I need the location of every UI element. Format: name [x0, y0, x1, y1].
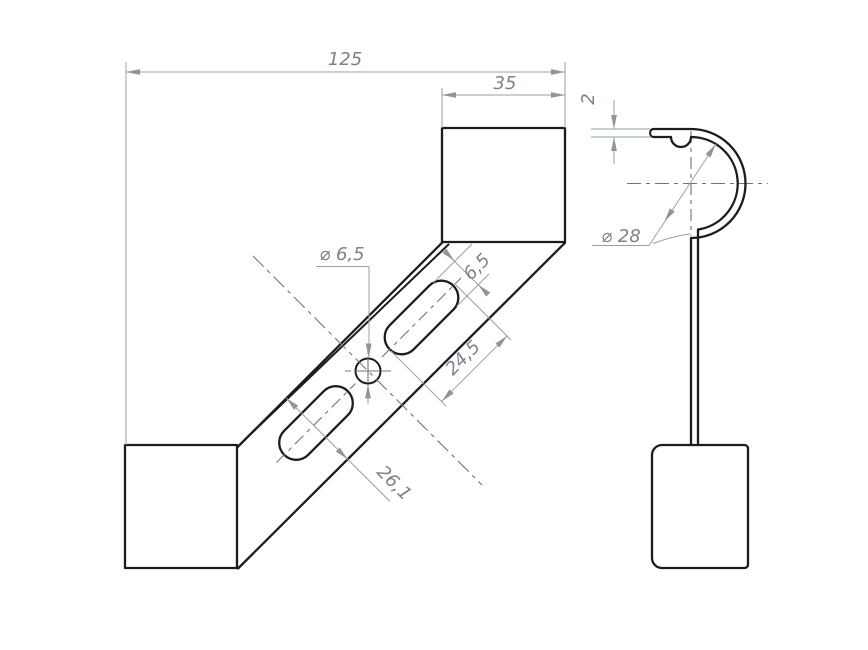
arrowhead [365, 385, 371, 399]
arrowhead [662, 208, 675, 223]
arrowhead [551, 92, 565, 98]
top-plate-outline [442, 128, 565, 242]
dim-clamp-diameter-text: ⌀ 28 [601, 226, 640, 247]
strap-lower-edge [238, 243, 565, 569]
arrowhead [442, 92, 456, 98]
extension-line [454, 283, 511, 340]
hook-outer-profile [653, 129, 746, 445]
front-view: 125 35 ⌀ 6,5 6,5 24,5 26,1 [125, 49, 565, 569]
arrowhead [495, 334, 509, 348]
arrowhead [442, 249, 456, 263]
arrowhead [284, 396, 298, 410]
arrowhead [366, 344, 372, 358]
arrowhead [476, 283, 490, 297]
extension-line [391, 351, 446, 406]
dim-strap-width-text: 26,1 [372, 462, 415, 505]
base-plate-profile [652, 445, 748, 568]
dim-hole-diameter-text: ⌀ 6,5 [319, 244, 364, 265]
dim-slot-length-text: 24,5 [442, 337, 485, 380]
arrowhead [551, 69, 565, 75]
bottom-plate-outline [125, 445, 237, 568]
bracket-drawing: 125 35 ⌀ 6,5 6,5 24,5 26,1 [0, 0, 868, 650]
dim-thickness-text: 2 [578, 93, 599, 104]
flange-end-cap [650, 129, 653, 137]
dim-top-plate-width-text: 35 [494, 73, 517, 94]
strap-upper-edge-bend-line [246, 245, 449, 439]
arrowhead [126, 69, 140, 75]
hook-end-edge-line [653, 234, 691, 244]
technical-drawing-canvas: 125 35 ⌀ 6,5 6,5 24,5 26,1 [0, 0, 868, 650]
arrowhead [336, 447, 350, 461]
arrowhead [611, 137, 617, 151]
side-view: 2 ⌀ 28 [578, 93, 768, 568]
dim-overall-width-text: 125 [328, 49, 362, 70]
arrowhead [440, 389, 454, 403]
arrowhead [611, 115, 617, 129]
dim-slot-width-text: 6,5 [460, 250, 495, 285]
